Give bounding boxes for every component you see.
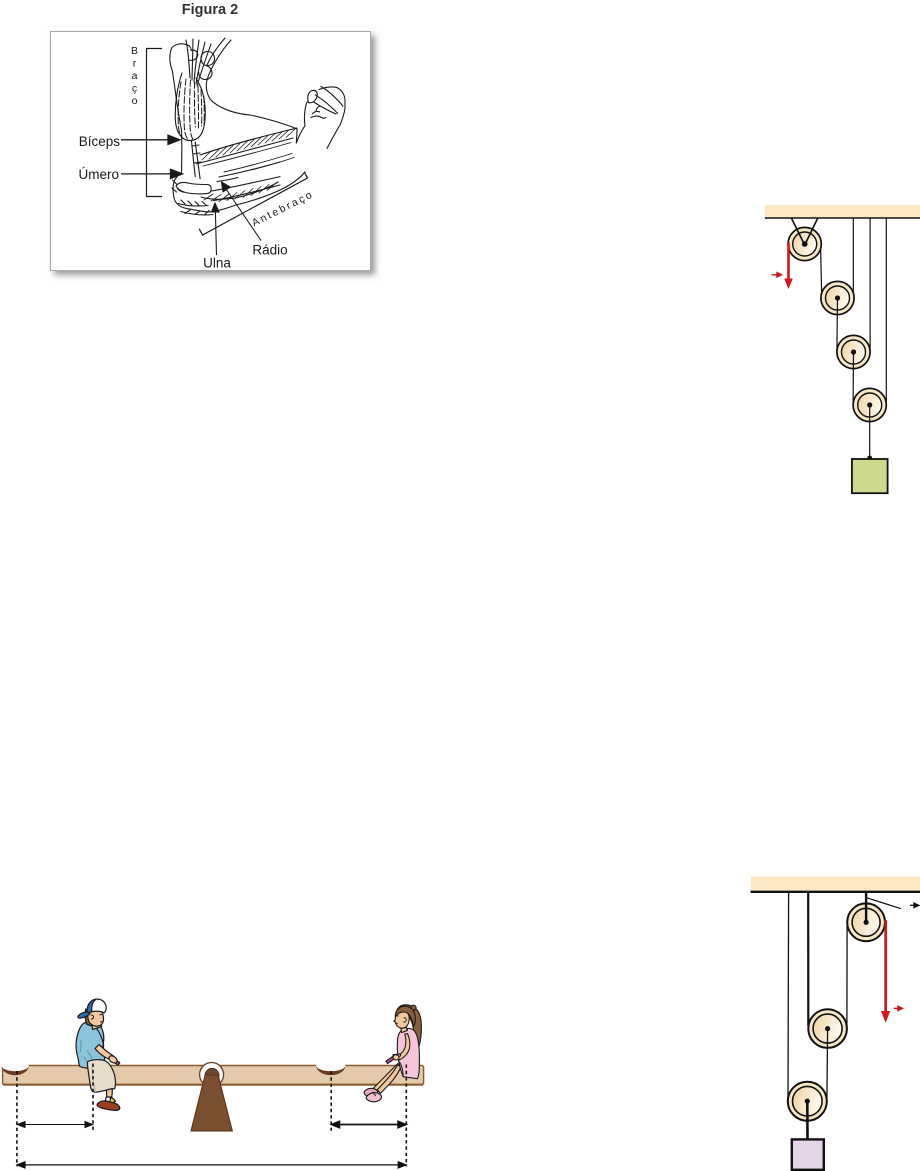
svg-text:Bíceps: Bíceps (79, 134, 121, 149)
svg-text:o: o (132, 95, 138, 107)
svg-text:ç: ç (132, 83, 137, 95)
svg-text:r: r (133, 58, 137, 70)
svg-text:B: B (131, 45, 138, 57)
svg-text:a: a (132, 70, 138, 82)
svg-text:Úmero: Úmero (78, 167, 119, 182)
svg-text:Ulna: Ulna (203, 256, 231, 271)
svg-text:Antebraço: Antebraço (250, 188, 316, 229)
svg-text:Rádio: Rádio (252, 243, 287, 258)
